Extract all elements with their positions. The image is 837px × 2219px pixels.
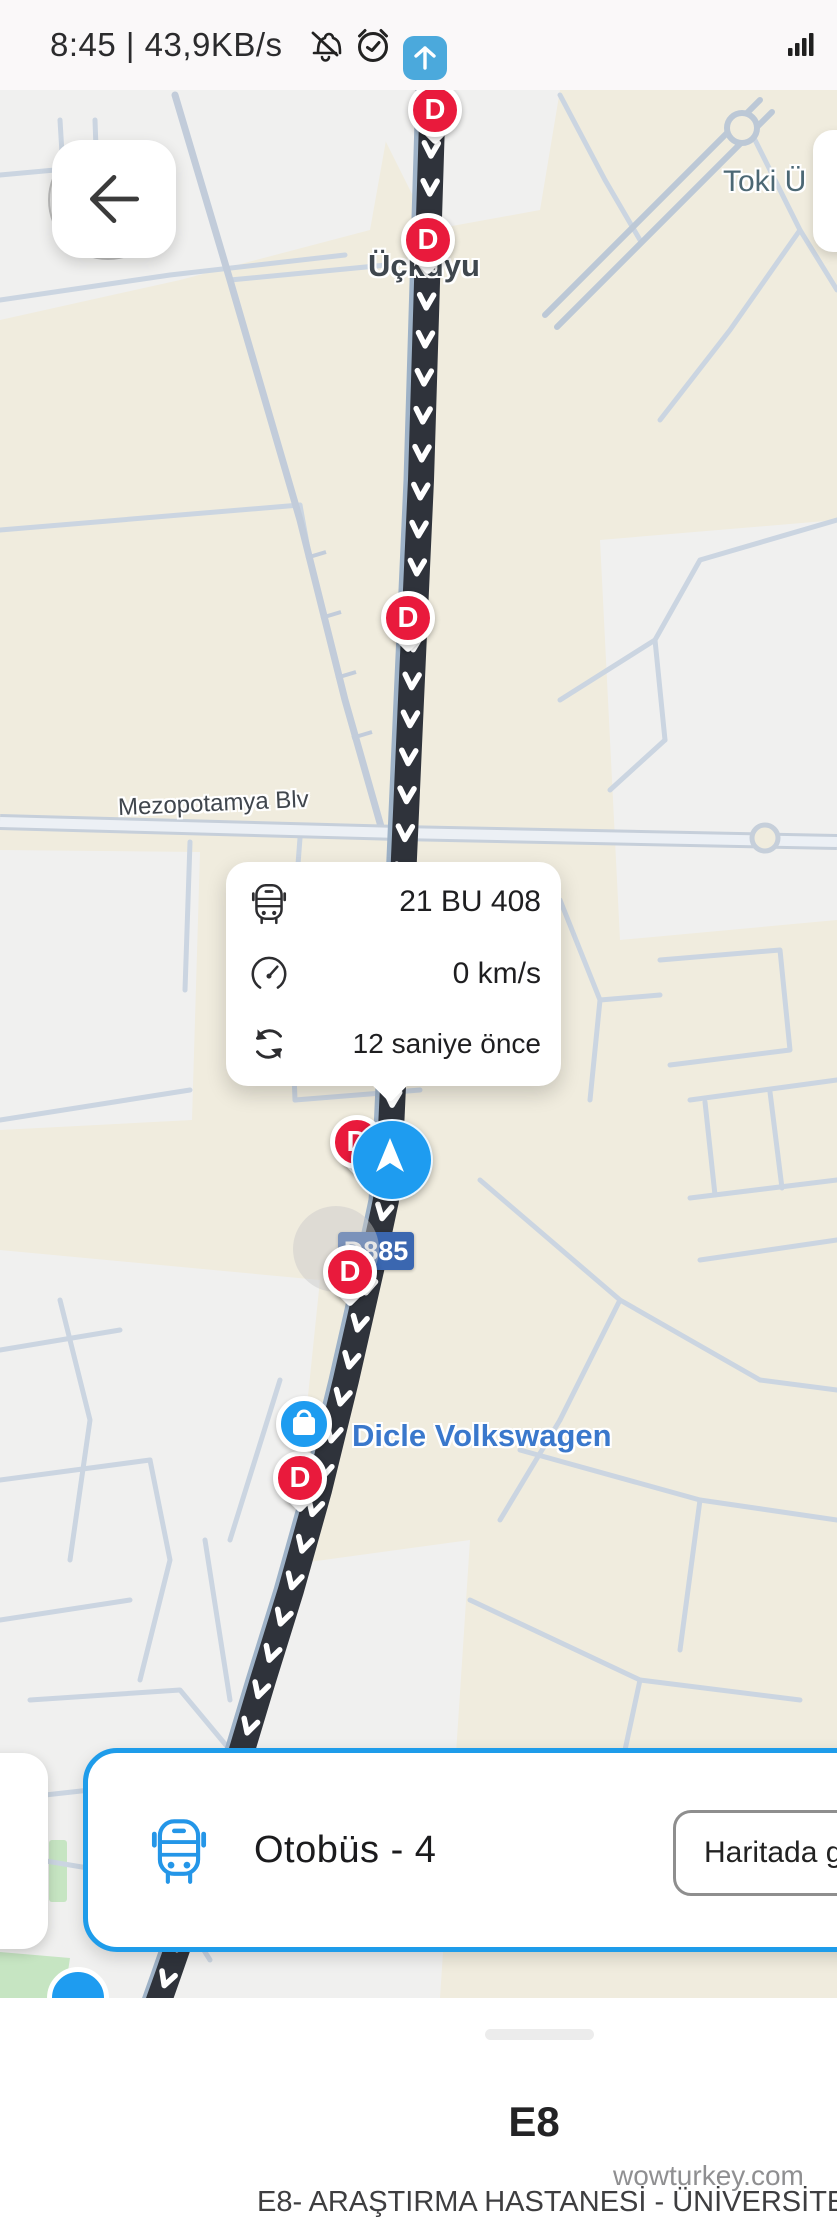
route-code: E8 xyxy=(508,2098,559,2146)
last-update-time: 12 saniye önce xyxy=(292,1028,561,1060)
bus-stop-marker[interactable]: D xyxy=(381,591,435,645)
map-view[interactable]: Üçkuyu Toki Ü Mezopotamya Blv Dicle Volk… xyxy=(0,90,837,1998)
bus-icon xyxy=(246,879,292,925)
route-name: E8- ARAŞTIRMA HASTANESİ - ÜNİVERSİTE xyxy=(257,2186,837,2219)
arrow-left-icon xyxy=(83,168,145,230)
navigation-arrow-icon xyxy=(353,1121,427,1195)
bus-card-title: Otobüs - 4 xyxy=(254,1829,436,1872)
refresh-icon xyxy=(246,1021,292,1067)
bus-stop-marker[interactable]: D xyxy=(273,1451,327,1505)
poi-label-dicle-volkswagen: Dicle Volkswagen xyxy=(352,1418,612,1454)
vehicle-speed: 0 km/s xyxy=(292,957,561,991)
bus-icon-blue xyxy=(144,1812,214,1888)
status-time-netspeed: 8:45 | 43,9KB/s xyxy=(50,26,283,64)
vehicle-info-card[interactable]: 21 BU 408 0 km/s 12 saniye önce xyxy=(226,862,561,1086)
drag-handle[interactable] xyxy=(485,2029,594,2040)
place-label-toki: Toki Ü xyxy=(723,165,806,199)
selected-bus-card[interactable]: Otobüs - 4 Haritada göster xyxy=(83,1748,837,1952)
arrow-up-icon xyxy=(409,42,441,74)
phone-screen: Üçkuyu Toki Ü Mezopotamya Blv Dicle Volk… xyxy=(0,0,837,2219)
bus-stop-marker[interactable]: D xyxy=(408,90,462,137)
show-on-map-button[interactable]: Haritada göster xyxy=(673,1810,837,1896)
signal-strength-icon xyxy=(788,33,818,57)
previous-vehicle-card-partial[interactable] xyxy=(0,1753,48,1949)
upload-indicator-badge xyxy=(403,36,447,80)
notifications-muted-icon xyxy=(306,26,344,64)
bus-position-marker[interactable] xyxy=(351,1119,433,1201)
shopping-bag-icon xyxy=(281,1401,327,1447)
status-bar: 8:45 | 43,9KB/s xyxy=(0,0,837,90)
show-on-map-label: Haritada göster xyxy=(704,1836,837,1870)
speedometer-icon xyxy=(246,951,292,997)
bus-stop-marker[interactable]: D xyxy=(401,213,455,267)
bus-stop-marker[interactable]: D xyxy=(323,1245,377,1299)
alarm-clock-icon xyxy=(352,24,394,66)
back-button[interactable] xyxy=(52,140,176,258)
route-bottom-sheet[interactable]: E8 wowturkey.com E8- ARAŞTIRMA HASTANESİ… xyxy=(0,1998,837,2219)
vehicle-plate: 21 BU 408 xyxy=(292,885,561,919)
offscreen-card-right xyxy=(813,130,837,252)
shop-poi-marker[interactable] xyxy=(276,1396,332,1452)
